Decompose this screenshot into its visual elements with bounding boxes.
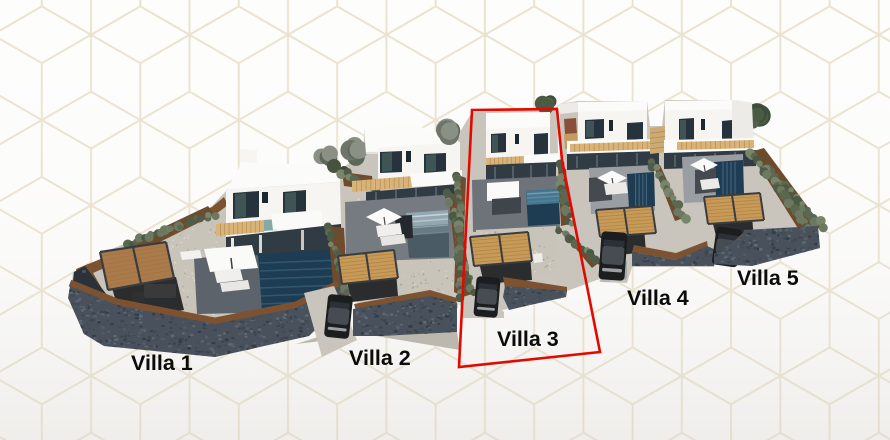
svg-text:Villa 4: Villa 4 xyxy=(627,286,689,310)
svg-text:Villa 1: Villa 1 xyxy=(131,351,193,375)
svg-text:Villa 2: Villa 2 xyxy=(349,346,411,370)
svg-text:Villa 5: Villa 5 xyxy=(737,266,799,290)
svg-text:Villa 3: Villa 3 xyxy=(497,327,559,351)
